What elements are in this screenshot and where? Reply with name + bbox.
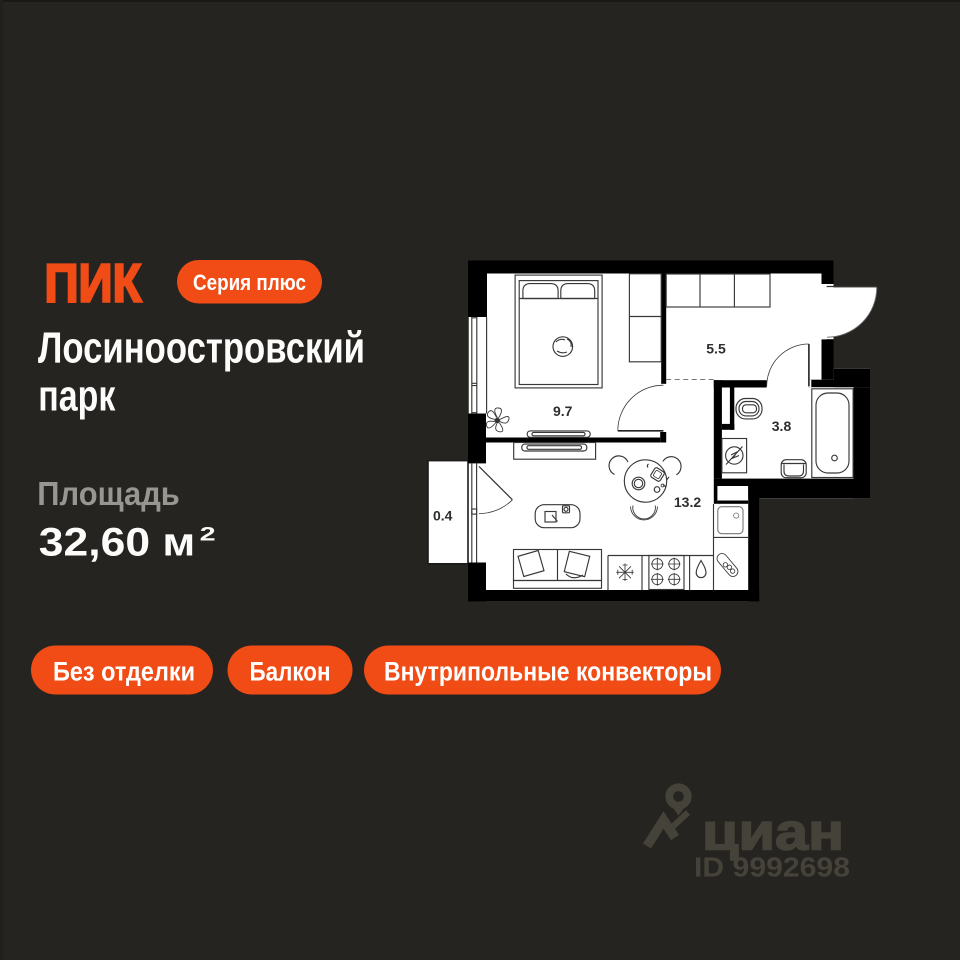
svg-text:13.2: 13.2 (674, 494, 701, 510)
svg-text:9.7: 9.7 (553, 403, 573, 419)
svg-text:5.5: 5.5 (706, 341, 726, 357)
svg-text:3.8: 3.8 (772, 418, 792, 434)
svg-text:0.4: 0.4 (433, 508, 453, 524)
